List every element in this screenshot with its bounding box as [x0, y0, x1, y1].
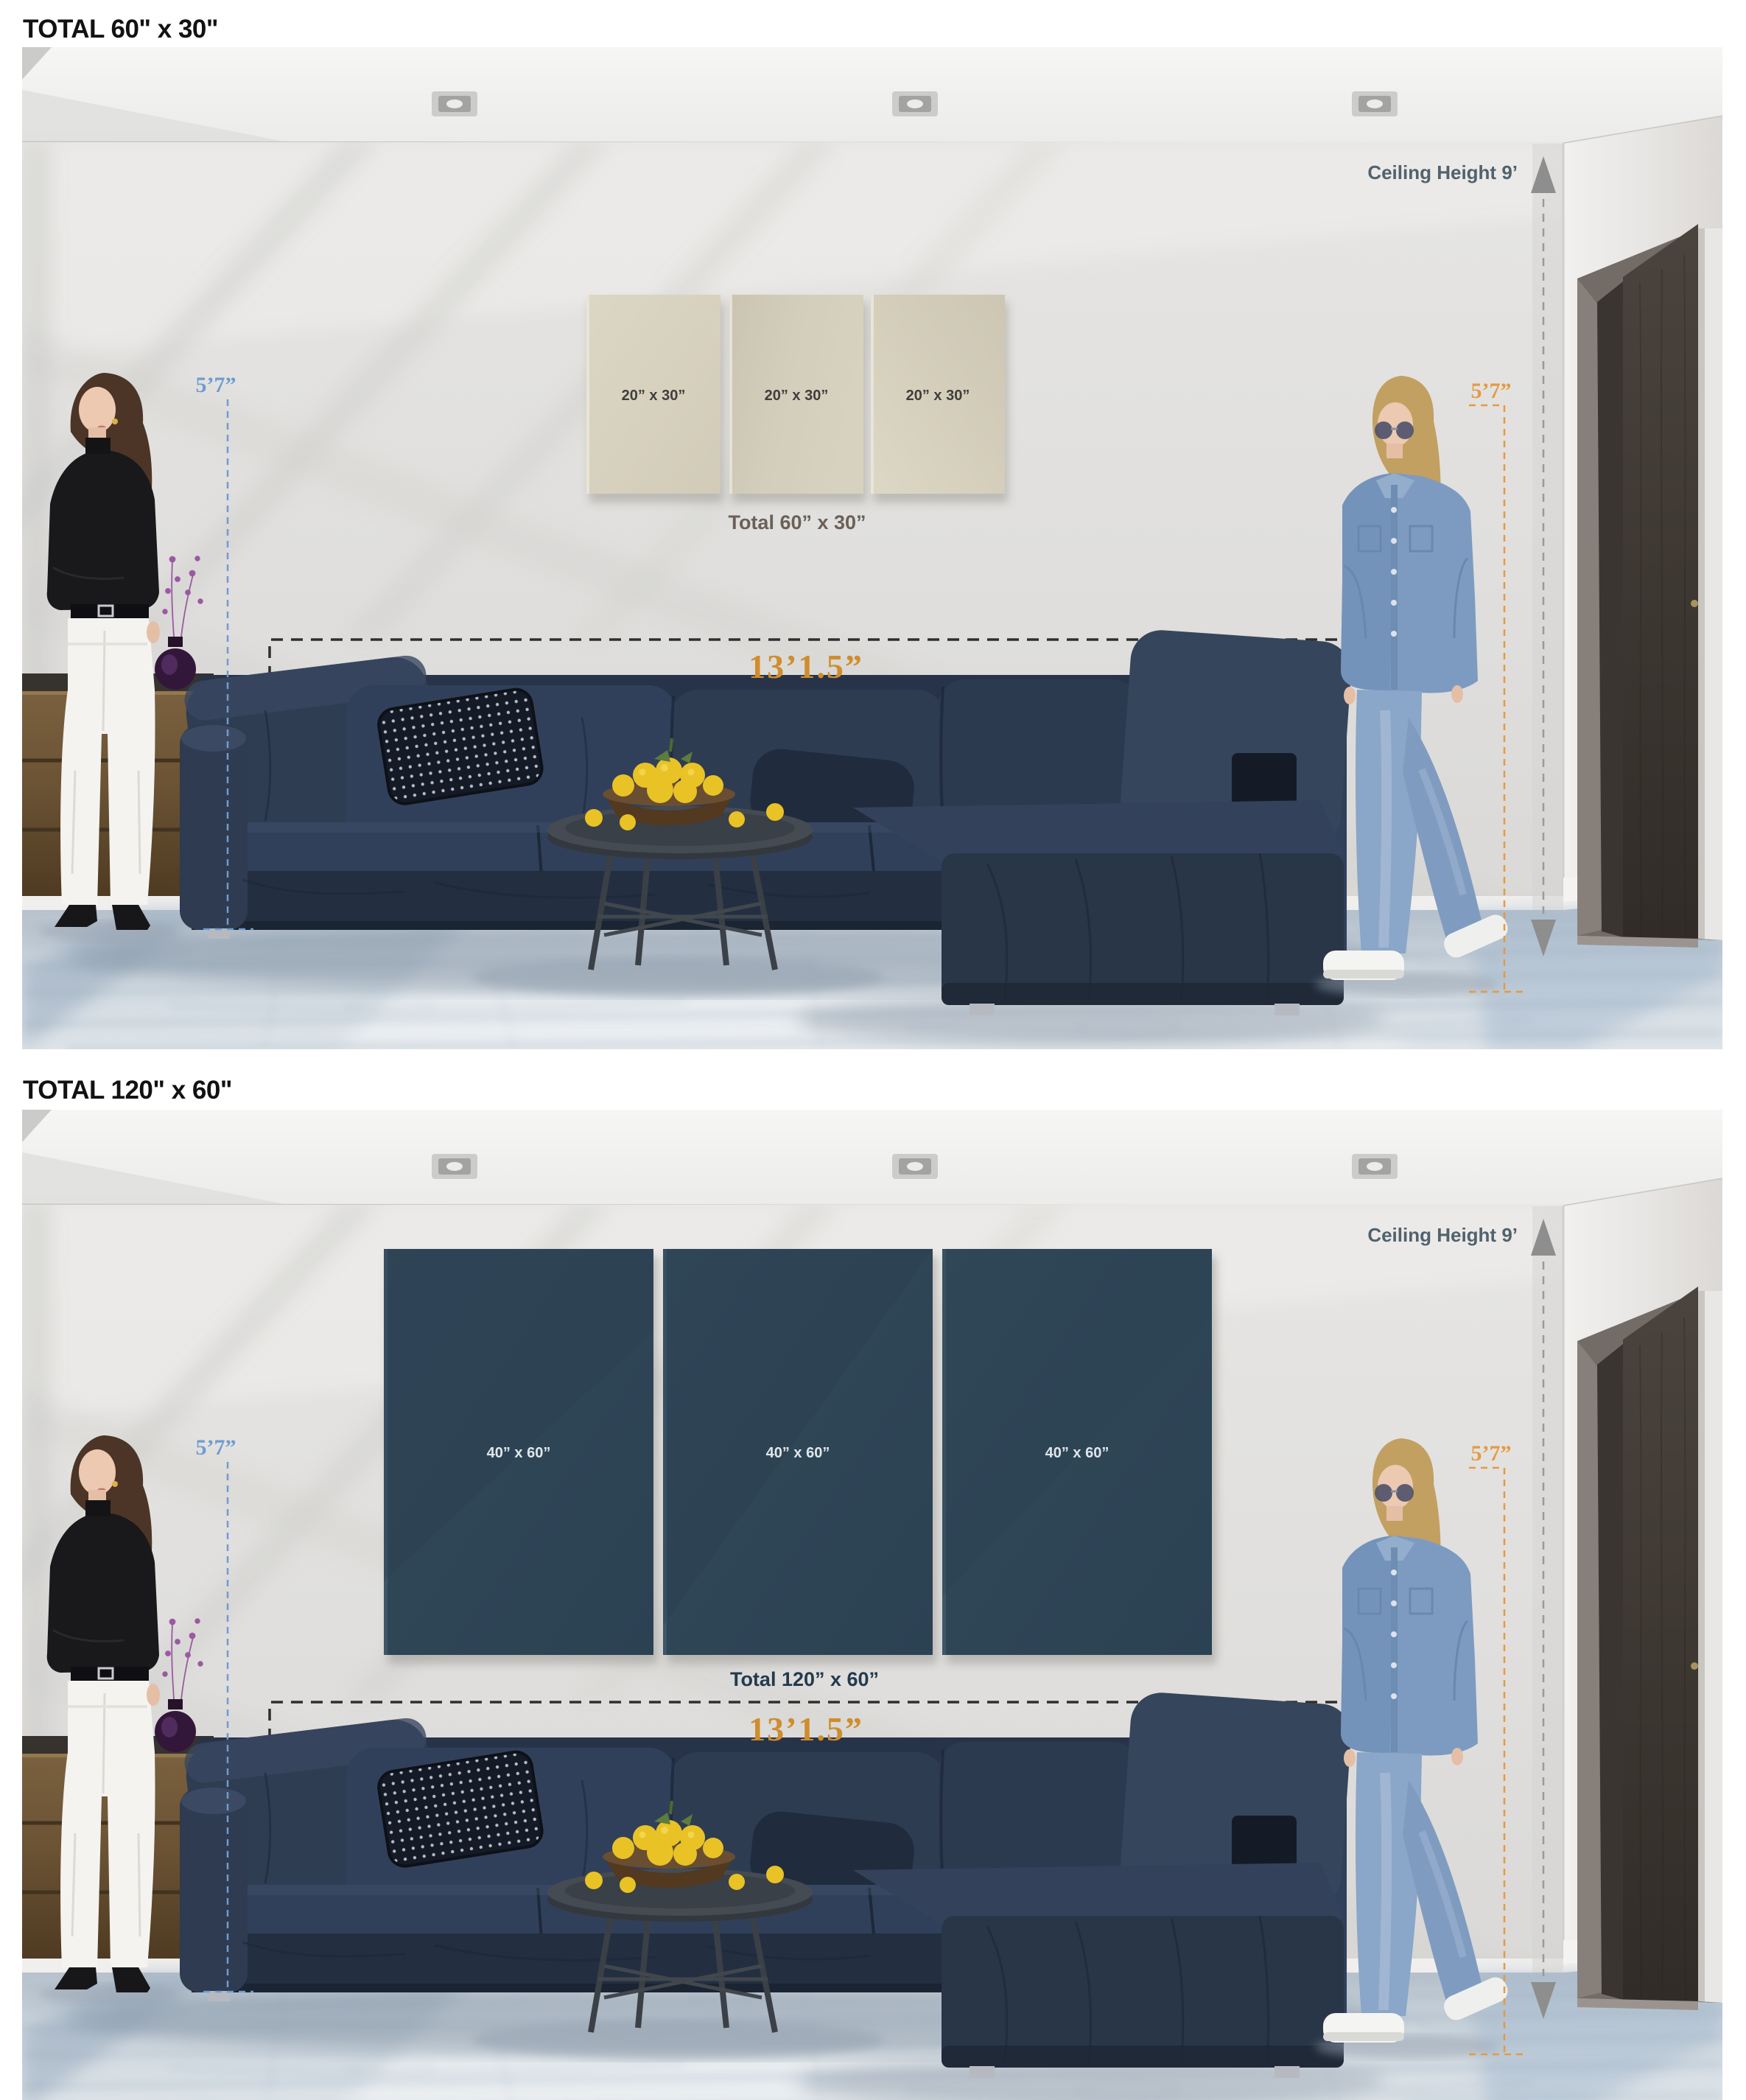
svg-text:40” x 60”: 40” x 60” — [766, 1445, 830, 1461]
svg-text:Ceiling Height 9’: Ceiling Height 9’ — [1367, 161, 1518, 183]
svg-text:40” x 60”: 40” x 60” — [1045, 1445, 1109, 1461]
svg-text:5’7”: 5’7” — [196, 373, 236, 397]
svg-text:20” x 30”: 20” x 30” — [622, 388, 686, 404]
svg-text:Total 60” x 30”: Total 60” x 30” — [728, 511, 866, 533]
svg-text:5’7”: 5’7” — [1471, 379, 1512, 403]
svg-text:40” x 60”: 40” x 60” — [487, 1445, 551, 1461]
svg-text:20” x 30”: 20” x 30” — [765, 388, 829, 404]
svg-text:Total 120” x 60”: Total 120” x 60” — [730, 1668, 879, 1690]
svg-text:13’1.5”: 13’1.5” — [748, 648, 863, 685]
svg-text:20” x 30”: 20” x 30” — [906, 388, 970, 404]
